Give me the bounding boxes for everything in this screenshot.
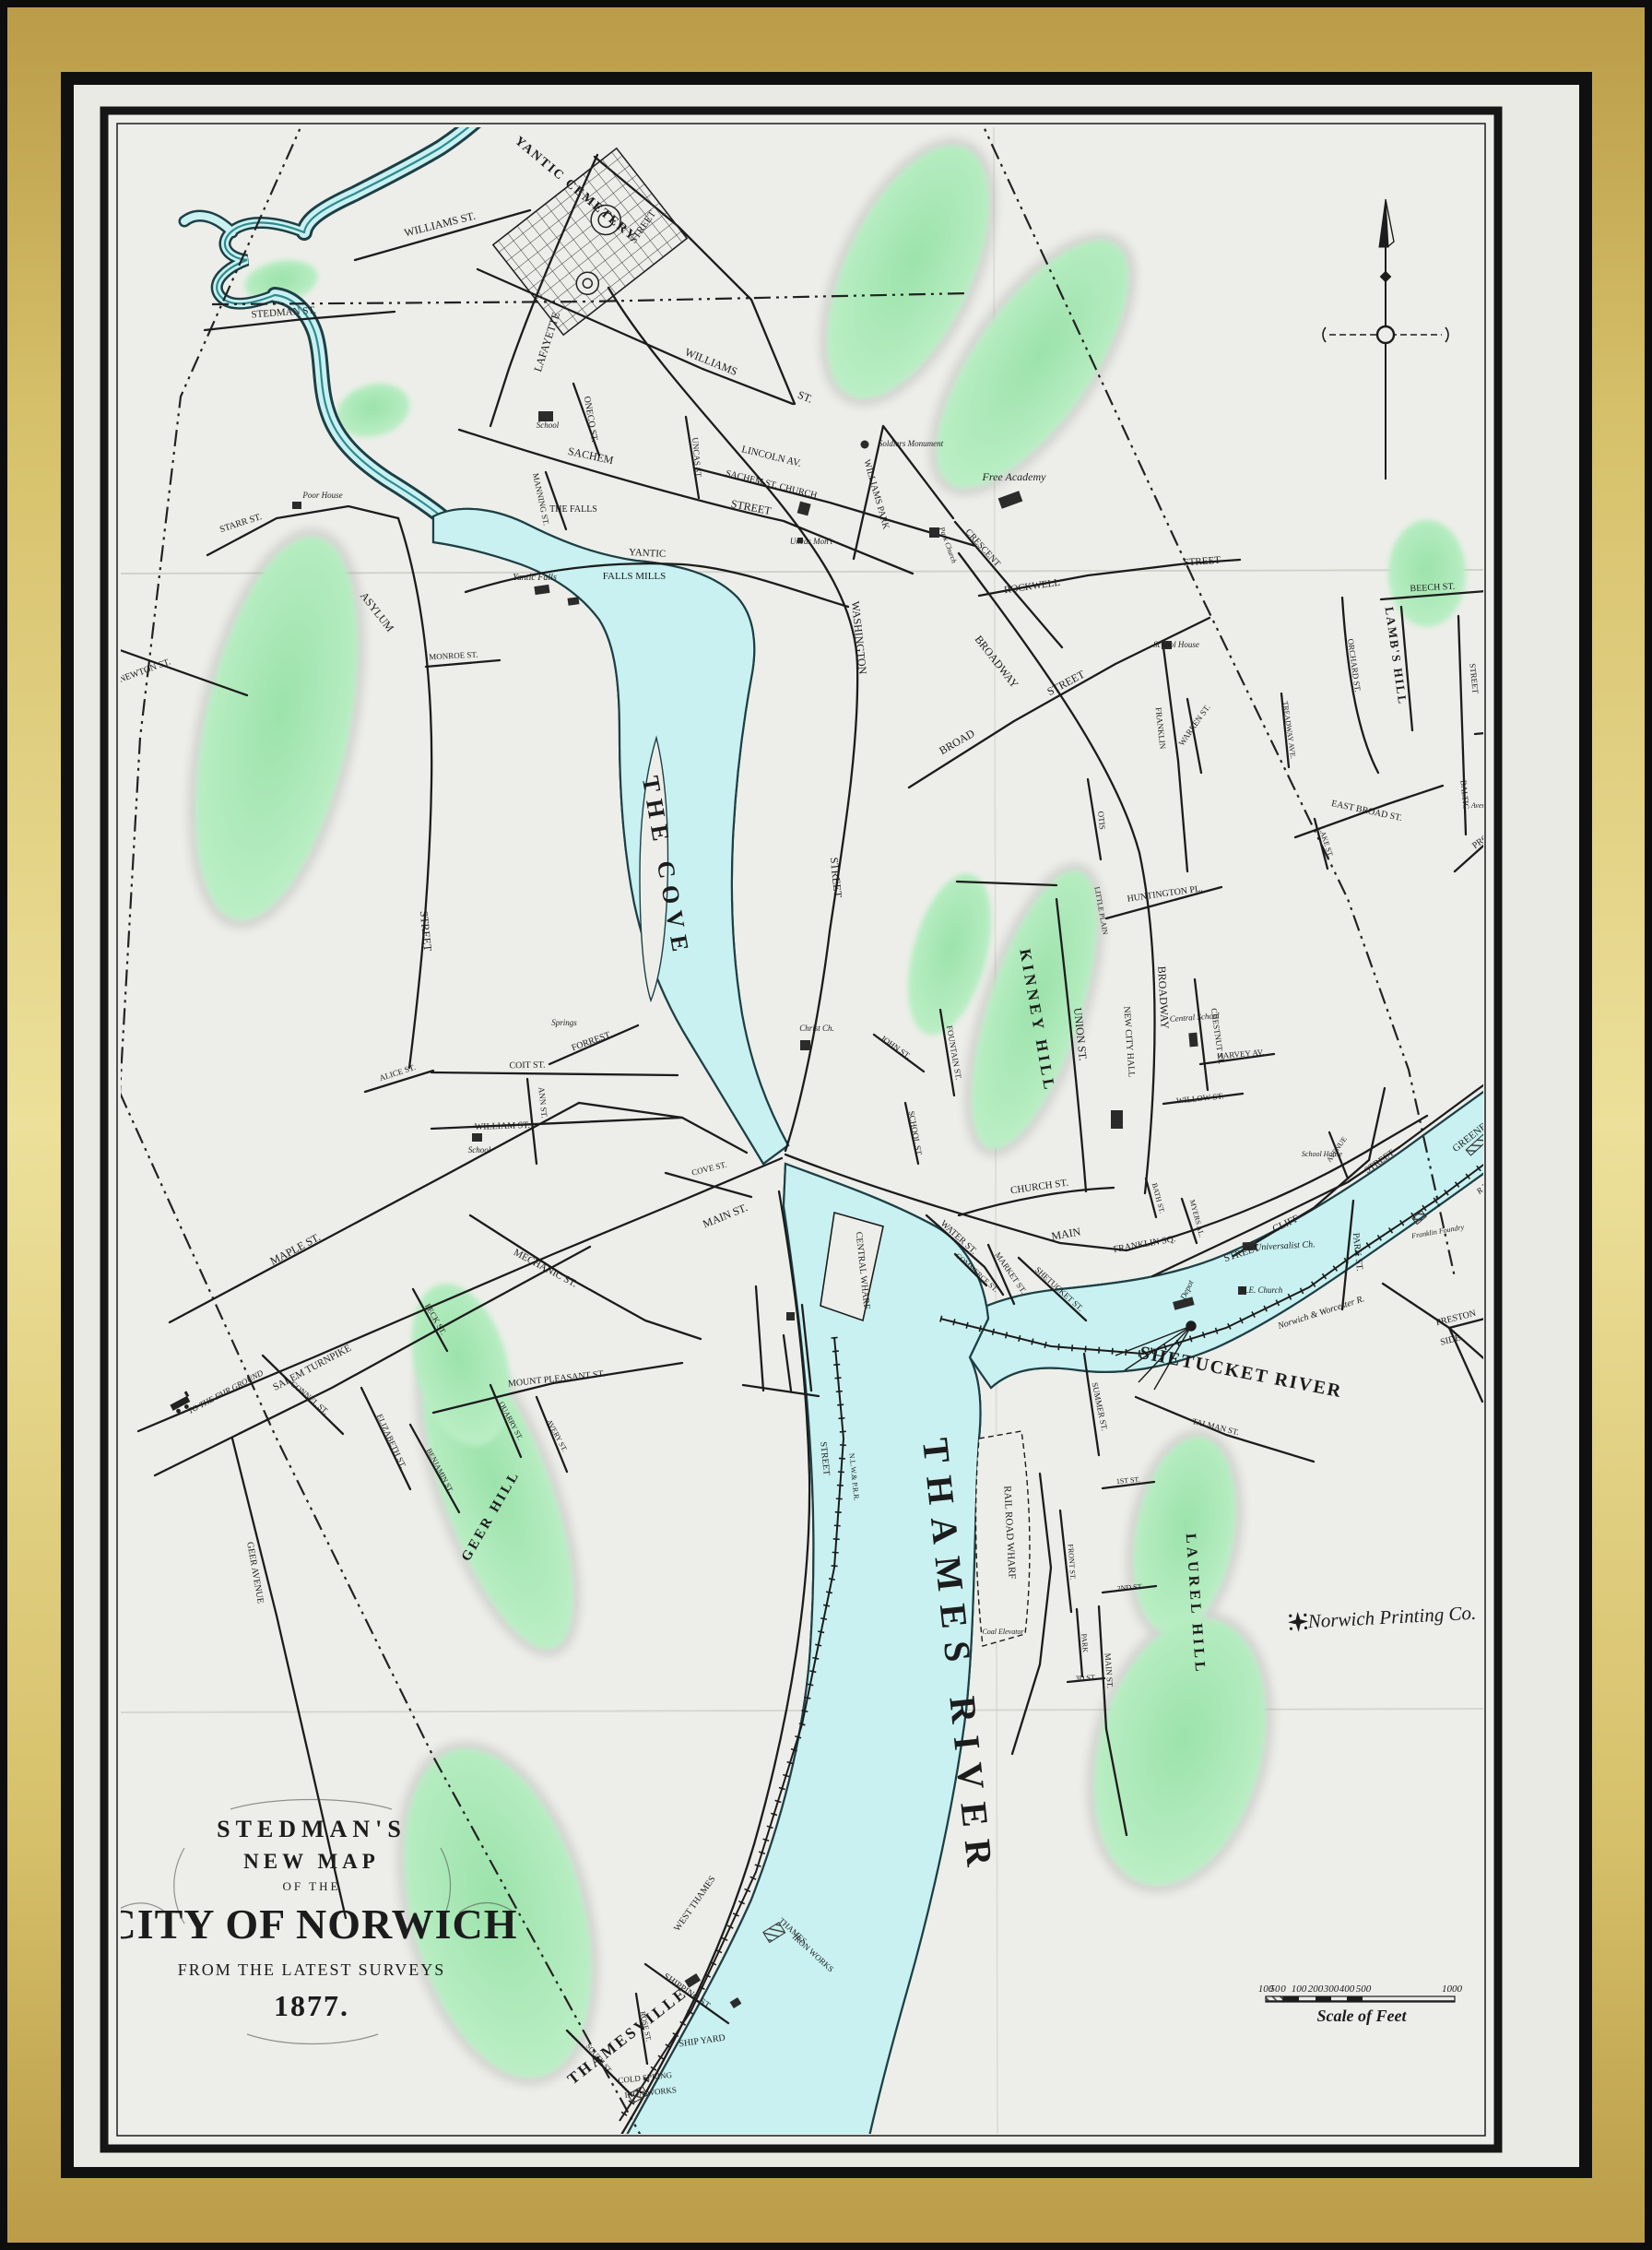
scale-tick-label: 0 bbox=[1280, 1984, 1286, 1995]
map-label: Yantic Falls bbox=[513, 573, 557, 583]
map-label: Poor House bbox=[301, 491, 342, 500]
scale-tick-label: 400 bbox=[1339, 1984, 1355, 1995]
title-line-4: CITY OF NORWICH bbox=[106, 1901, 518, 1948]
map-label: 3D ST. bbox=[1075, 1673, 1096, 1682]
title-line-5: FROM THE LATEST SURVEYS bbox=[178, 1960, 445, 1979]
title-line-2: NEW MAP bbox=[243, 1850, 380, 1873]
title-line-3: OF THE bbox=[283, 1879, 341, 1893]
map-label: PARK bbox=[1080, 1633, 1089, 1652]
lambs-hill-green bbox=[1388, 520, 1466, 627]
title-line-1: STEDMAN'S bbox=[217, 1816, 407, 1842]
soldiers-monument-mark bbox=[861, 441, 869, 449]
map-label: WILLIAM ST. bbox=[475, 1120, 531, 1132]
map-label: Soldiers Monument bbox=[879, 439, 944, 448]
map-canvas: 1005001002003004005001000 Scale of Feet … bbox=[0, 0, 1652, 2250]
map-label: School bbox=[537, 420, 560, 430]
map-label: School House bbox=[1153, 640, 1199, 649]
map-label: Springs bbox=[551, 1018, 577, 1027]
title-line-6: 1877. bbox=[274, 1989, 349, 2022]
rail-road-wharf bbox=[976, 1431, 1030, 1646]
map-label: YANTIC bbox=[629, 547, 667, 560]
map-label: Free Academy bbox=[982, 470, 1047, 483]
scale-tick-label: 300 bbox=[1323, 1984, 1339, 1995]
map-label: M.E. Church bbox=[1239, 1285, 1283, 1295]
map-label: COIT ST. bbox=[509, 1060, 545, 1072]
map-label: Coal Elevator bbox=[982, 1628, 1024, 1636]
map-label: Christ Ch. bbox=[799, 1024, 834, 1033]
map-label: OTIS bbox=[1096, 811, 1107, 830]
scale-tick-label: 100 bbox=[1292, 1984, 1307, 1995]
scale-caption: Scale of Feet bbox=[1317, 2007, 1408, 2025]
map-label: Uncas Mon't bbox=[790, 537, 833, 546]
map-label: THE FALLS bbox=[549, 504, 597, 515]
map-label: FALLS MILLS bbox=[603, 571, 667, 582]
scale-tick-label: 200 bbox=[1308, 1984, 1324, 1995]
map-label: School bbox=[468, 1145, 491, 1155]
scale-tick-label: 500 bbox=[1356, 1984, 1372, 1995]
scale-tick-label: 50 bbox=[1270, 1984, 1281, 1995]
scale-tick-label: 1000 bbox=[1442, 1984, 1463, 1995]
framed-map: 1005001002003004005001000 Scale of Feet … bbox=[0, 0, 1652, 2250]
